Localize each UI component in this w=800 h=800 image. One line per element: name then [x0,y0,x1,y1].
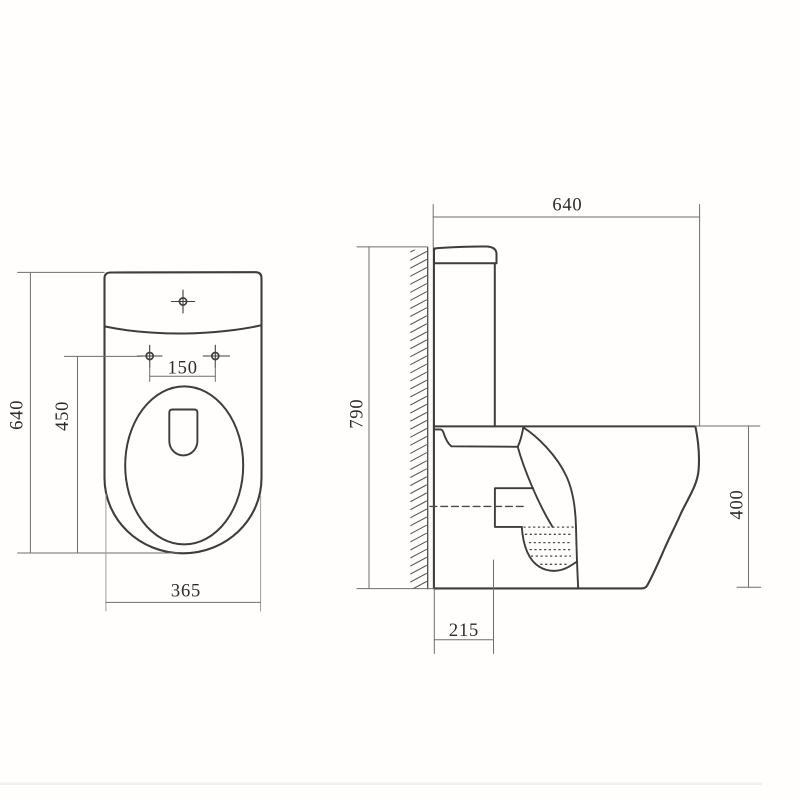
svg-text:150: 150 [168,359,198,379]
svg-text:365: 365 [171,582,201,602]
svg-text:790: 790 [347,399,367,429]
svg-text:215: 215 [449,621,479,641]
svg-text:400: 400 [728,489,748,519]
svg-text:640: 640 [552,196,582,216]
svg-text:450: 450 [53,401,73,431]
svg-text:640: 640 [7,400,27,430]
